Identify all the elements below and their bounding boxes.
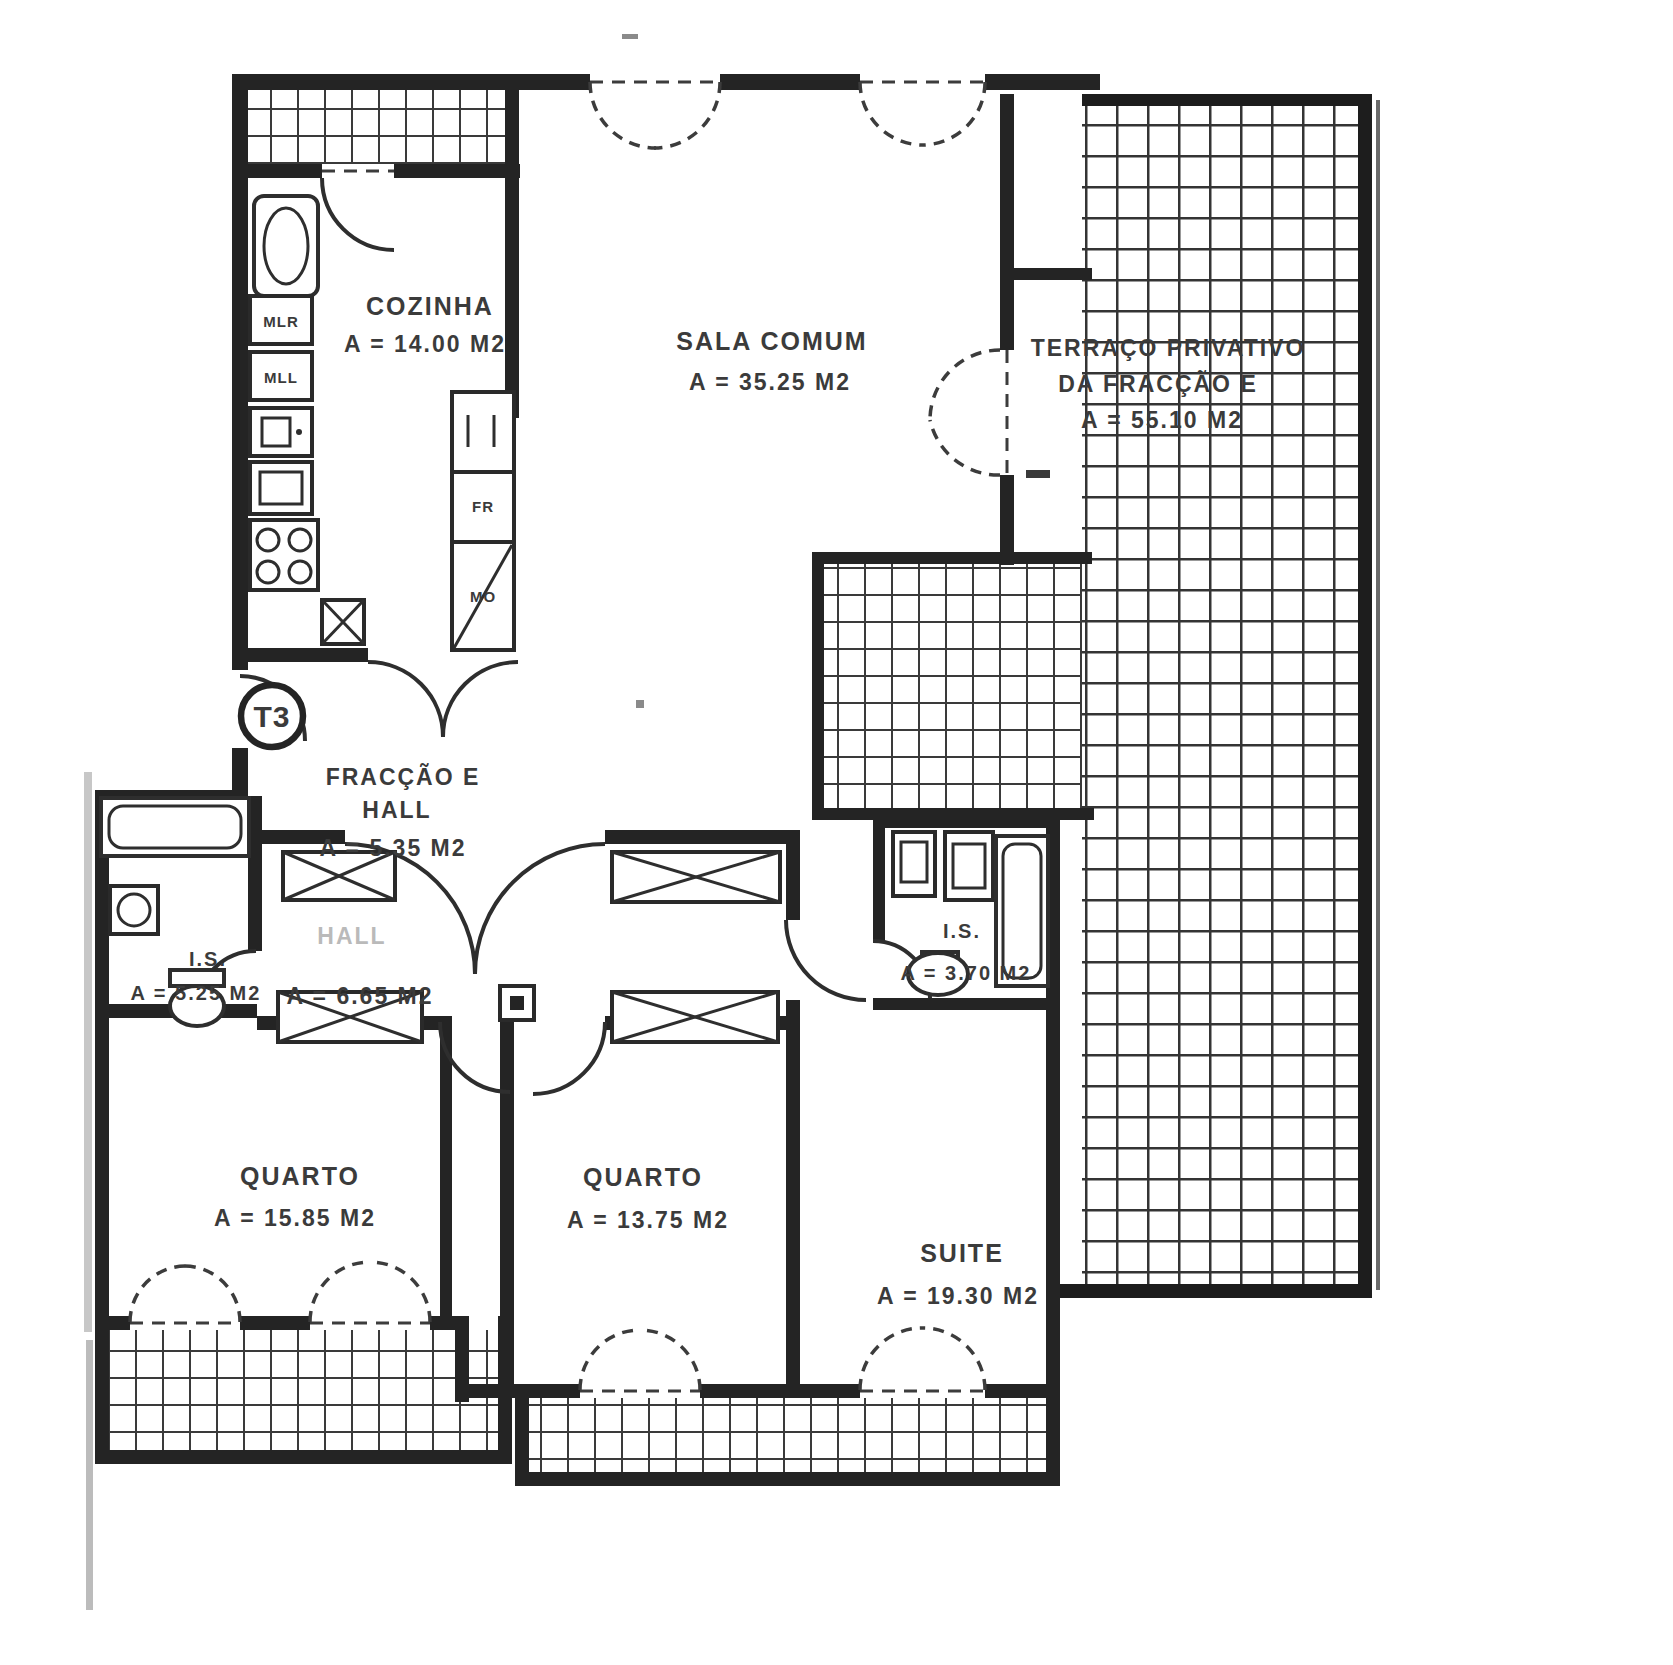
bidet-suite	[945, 832, 993, 900]
label-cozinha-area: A = 14.00 M2	[344, 331, 506, 357]
tall-cabinet	[452, 392, 514, 472]
label-mlr: MLR	[263, 313, 299, 330]
balcony-suite-tiles	[529, 1398, 1046, 1472]
wardrobe-box	[612, 852, 780, 902]
label-sala-area: A = 35.25 M2	[689, 369, 851, 395]
appliance-box	[250, 408, 312, 456]
label-is-left: I.S.	[189, 948, 227, 970]
label-suite-area: A = 19.30 M2	[877, 1283, 1039, 1309]
floor-plan-page: T3 COZINHA A = 14.00 M2 SALA COMUM A = 3…	[0, 0, 1673, 1665]
label-fraccao: FRACÇÃO E	[326, 763, 481, 790]
label-terraco-area: A = 55.10 M2	[1081, 407, 1243, 433]
label-quarto-2: QUARTO	[583, 1163, 703, 1191]
balcony-bedroom-tiles	[109, 1330, 498, 1450]
type-badge: T3	[241, 685, 303, 747]
badge-label: T3	[253, 700, 290, 733]
label-mo: MO	[470, 588, 496, 605]
kitchen-sink	[322, 600, 364, 644]
door-pivot-block	[500, 986, 534, 1020]
laundry-tub	[254, 196, 318, 296]
label-fraccao-hall: HALL	[362, 797, 431, 823]
appliance-box	[250, 462, 312, 514]
label-is-suite-area: A = 3.70 M2	[901, 962, 1032, 984]
label-quarto-1-area: A = 15.85 M2	[214, 1205, 376, 1231]
label-mll: MLL	[264, 369, 298, 386]
floor-plan-drawing: T3 COZINHA A = 14.00 M2 SALA COMUM A = 3…	[0, 0, 1673, 1665]
label-fraccao-area: A = 5.35 M2	[319, 835, 466, 861]
label-is-left-area: A = 5.25 M2	[131, 982, 262, 1004]
kitchen-fixtures	[250, 196, 514, 650]
label-quarto-1: QUARTO	[240, 1162, 360, 1190]
label-hall: HALL	[317, 923, 386, 949]
label-fr: FR	[472, 498, 494, 515]
washbasin-left	[110, 886, 158, 934]
wardrobe-box	[612, 992, 778, 1042]
label-cozinha: COZINHA	[366, 292, 494, 320]
toilet-suite	[893, 832, 935, 896]
label-quarto-2-area: A = 13.75 M2	[567, 1207, 729, 1233]
label-sala: SALA COMUM	[676, 327, 867, 355]
label-suite: SUITE	[920, 1239, 1004, 1267]
label-terraco-2: DA FRACÇÃO E	[1058, 370, 1257, 397]
stove	[250, 520, 318, 590]
balcony-service-tiles	[248, 88, 518, 164]
label-hall-area: A = 6.65 M2	[286, 983, 433, 1009]
label-is-suite: I.S.	[943, 920, 981, 942]
bathtub-left	[101, 798, 249, 856]
label-terraco-1: TERRAÇO PRIVATIVO	[1031, 335, 1306, 361]
terrace-main-tiles	[1082, 106, 1358, 1284]
terrace-patio-tiles	[824, 564, 1082, 808]
